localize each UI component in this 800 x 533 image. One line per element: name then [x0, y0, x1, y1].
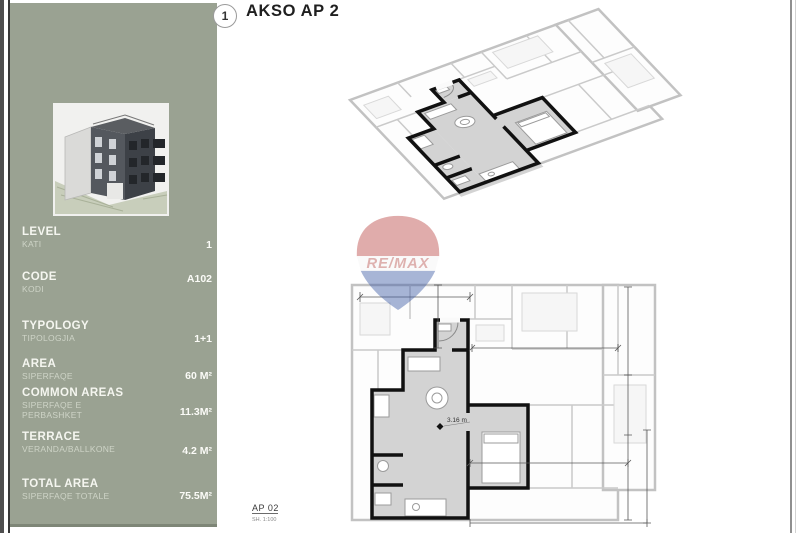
plan-caption: AP 02 — [252, 503, 279, 513]
remax-wordmark: RE/MAX — [366, 256, 429, 272]
plan-scale-label: SH. 1:100 — [252, 517, 276, 523]
remax-balloon-watermark-icon: RE/MAX — [350, 212, 446, 312]
2d-floorplan: 3.16 m AP 02 SH. 1:100 — [252, 285, 655, 527]
room-dimension-label: 3.16 m — [447, 417, 467, 424]
axonometric-floorplan — [350, 9, 692, 199]
floorplan-sheet: { "page": { "badge": "1", "title": "AKSO… — [0, 0, 800, 533]
